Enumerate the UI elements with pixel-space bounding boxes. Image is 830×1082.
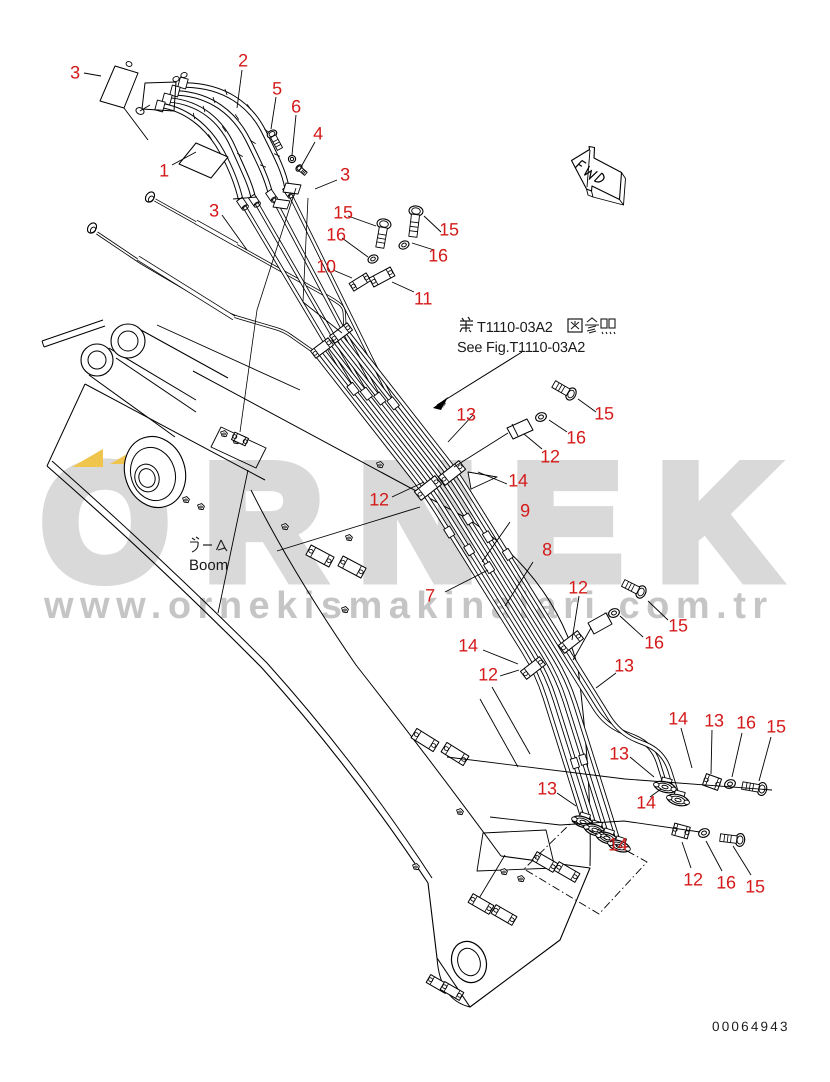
svg-text:13: 13 [456, 405, 476, 425]
svg-text:10: 10 [316, 257, 336, 277]
svg-text:3: 3 [70, 63, 80, 83]
svg-text:8: 8 [542, 540, 552, 560]
svg-text:2: 2 [238, 51, 248, 71]
svg-text:16: 16 [716, 873, 736, 893]
svg-text:15: 15 [668, 616, 688, 636]
svg-text:5: 5 [272, 79, 282, 99]
svg-text:15: 15 [766, 717, 786, 737]
svg-text:15: 15 [594, 404, 614, 424]
svg-text:12: 12 [683, 870, 703, 890]
svg-text:12: 12 [369, 490, 389, 510]
svg-text:14: 14 [608, 835, 628, 855]
svg-text:3: 3 [340, 165, 350, 185]
svg-text:00064943: 00064943 [712, 1019, 790, 1034]
svg-text:1: 1 [159, 161, 169, 181]
svg-text:14: 14 [636, 793, 656, 813]
svg-text:16: 16 [566, 428, 586, 448]
svg-text:14: 14 [508, 471, 528, 491]
svg-text:www.ornekismakinalari.com.tr: www.ornekismakinalari.com.tr [43, 585, 774, 627]
svg-text:16: 16 [736, 713, 756, 733]
svg-text:9: 9 [520, 501, 530, 521]
svg-text:16: 16 [326, 225, 346, 245]
svg-text:13: 13 [614, 656, 634, 676]
svg-text:16: 16 [428, 246, 448, 266]
svg-text:4: 4 [313, 124, 323, 144]
svg-text:15: 15 [333, 203, 353, 223]
svg-text:3: 3 [209, 201, 219, 221]
svg-text:6: 6 [291, 97, 301, 117]
svg-text:14: 14 [458, 636, 478, 656]
svg-text:7: 7 [425, 586, 435, 606]
svg-text:13: 13 [704, 711, 724, 731]
svg-text:16: 16 [644, 633, 664, 653]
svg-text:11: 11 [414, 289, 432, 309]
svg-text:13: 13 [537, 779, 557, 799]
svg-text:14: 14 [668, 709, 688, 729]
svg-text:T1110-03A2: T1110-03A2 [477, 320, 553, 336]
svg-text:12: 12 [568, 578, 588, 598]
svg-text:13: 13 [609, 744, 629, 764]
svg-text:See Fig.T1110-03A2: See Fig.T1110-03A2 [457, 340, 585, 356]
svg-text:12: 12 [478, 665, 498, 685]
svg-text:15: 15 [745, 877, 765, 897]
svg-text:12: 12 [540, 447, 560, 467]
svg-text:Boom: Boom [189, 557, 228, 574]
svg-text:15: 15 [439, 220, 459, 240]
